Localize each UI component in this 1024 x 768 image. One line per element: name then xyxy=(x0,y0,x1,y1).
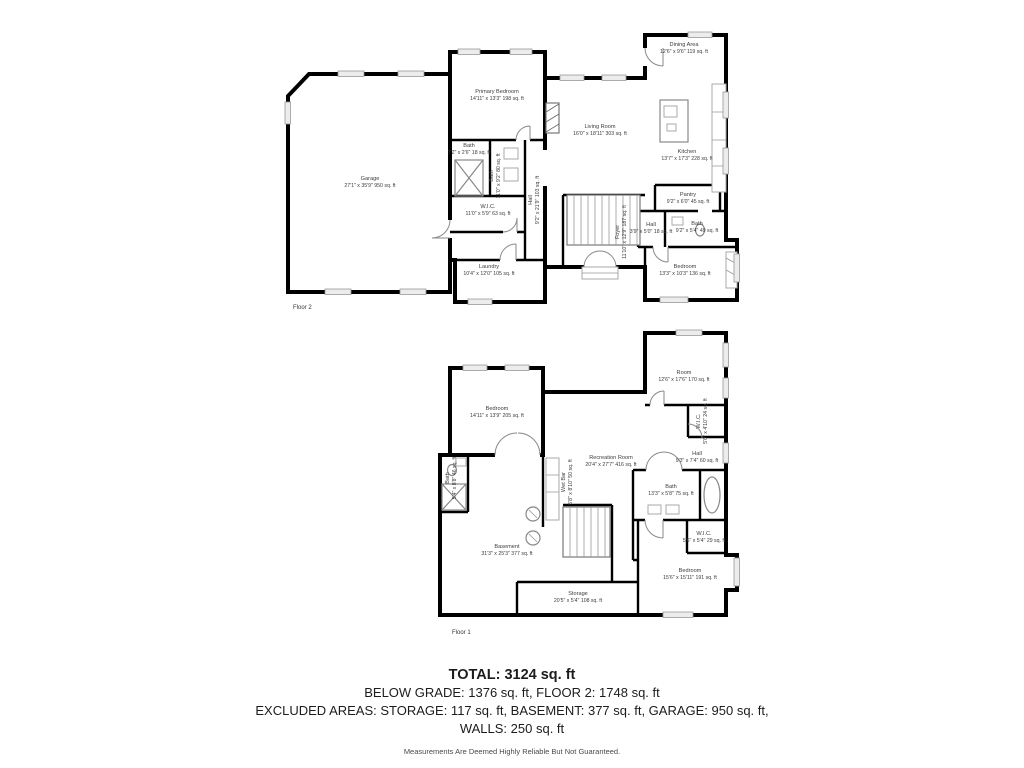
room-name: W.I.C. xyxy=(465,204,510,211)
room-name: Bath xyxy=(445,457,452,500)
room-dims: 9'2" x 5'4" 49 sq. ft xyxy=(676,228,719,235)
room-label-floor2-kitchen: Kitchen 13'7" x 17'3" 228 sq. ft xyxy=(661,149,712,163)
room-dims: 10'4" x 12'0" 105 sq. ft xyxy=(463,271,514,278)
room-label-floor1-recreation-room: Recreation Room 20'4" x 27'7" 416 sq. ft xyxy=(585,455,636,469)
floor-plan-page: Garage 27'1" x 35'9" 950 sq. ft Primary … xyxy=(0,0,1024,768)
room-dims: 7'2" x 2'6" 18 sq. ft xyxy=(448,150,491,157)
room-label-floor2-pantry: Pantry 9'2" x 6'0" 45 sq. ft xyxy=(667,192,710,206)
room-name: Bedroom xyxy=(470,406,524,413)
room-label-floor1-basement: Basement 31'3" x 25'3" 377 sq. ft xyxy=(481,544,532,558)
room-name: Bedroom xyxy=(663,568,717,575)
room-dims: 27'1" x 35'9" 950 sq. ft xyxy=(344,183,395,190)
room-label-floor2-wic: W.I.C. 11'0" x 5'9" 63 sq. ft xyxy=(465,204,510,218)
room-label-floor1-room: Room 12'6" x 17'6" 170 sq. ft xyxy=(658,370,709,384)
room-name: Kitchen xyxy=(661,149,712,156)
room-label-floor1-bedroom-right: Bedroom 15'6" x 15'11" 191 sq. ft xyxy=(663,568,717,582)
room-label-floor2-bath-right: Bath 9'2" x 5'4" 49 sq. ft xyxy=(676,221,719,235)
room-dims: 11'0" x 5'9" 63 sq. ft xyxy=(465,211,510,218)
room-name: Basement xyxy=(481,544,532,551)
floor1-caption: Floor 1 xyxy=(452,630,471,636)
floor2-stairs xyxy=(567,195,640,245)
room-name: Bath xyxy=(648,484,693,491)
room-dims: 20'4" x 27'7" 416 sq. ft xyxy=(585,462,636,469)
room-dims: 16'0" x 18'11" 303 sq. ft xyxy=(573,131,627,138)
room-dims: 14'11" x 13'3" 198 sq. ft xyxy=(470,96,524,103)
porch-steps xyxy=(582,267,618,279)
room-name: Hall xyxy=(528,176,535,224)
room-name: Room xyxy=(658,370,709,377)
room-name: Living Room xyxy=(573,124,627,131)
room-name: Garage xyxy=(344,176,395,183)
room-name: Bedroom xyxy=(659,264,710,271)
room-label-floor2-primary-bedroom: Primary Bedroom 14'11" x 13'3" 198 sq. f… xyxy=(470,89,524,103)
floor1-stairs xyxy=(563,507,610,557)
room-name: W.I.C. xyxy=(696,398,703,443)
room-dims: 5'0" x 4'10" 24 sq. ft xyxy=(703,398,710,443)
total-area-text: TOTAL: 3124 sq. ft xyxy=(0,666,1024,684)
room-label-floor2-hall-small: Hall 3'9" x 5'0" 18 sq. ft xyxy=(630,222,673,236)
room-dims: 13'3" x 10'3" 136 sq. ft xyxy=(659,271,710,278)
area-summary: TOTAL: 3124 sq. ft BELOW GRADE: 1376 sq.… xyxy=(0,666,1024,756)
room-label-floor1-bedroom-left: Bedroom 14'11" x 13'9" 205 sq. ft xyxy=(470,406,524,420)
room-label-floor1-wic-top: W.I.C. 5'0" x 4'10" 24 sq. ft xyxy=(696,398,710,443)
excluded-areas-text: EXCLUDED AREAS: STORAGE: 117 sq. ft, BAS… xyxy=(0,702,1024,720)
room-name: Hall xyxy=(676,451,719,458)
room-name: W.I.C. xyxy=(683,531,726,538)
room-name: Primary Bedroom xyxy=(470,89,524,96)
room-name: Hall xyxy=(630,222,673,229)
room-dims: 9'2" x 21'9" 103 sq. ft xyxy=(535,176,542,224)
room-dims: 15'6" x 15'11" 191 sq. ft xyxy=(663,575,717,582)
room-label-floor2-living-room: Living Room 16'0" x 18'11" 303 sq. ft xyxy=(573,124,627,138)
room-label-floor2-hall: Hall 9'2" x 21'9" 103 sq. ft xyxy=(528,176,542,224)
room-label-floor2-laundry: Laundry 10'4" x 12'0" 105 sq. ft xyxy=(463,264,514,278)
room-label-floor1-storage: Storage 20'5" x 5'4" 108 sq. ft xyxy=(554,591,602,605)
room-label-floor2-bath-main: Bath 11'0" x 9'2" 80 sq. ft xyxy=(489,153,503,198)
room-name: Pantry xyxy=(667,192,710,199)
room-label-floor1-wet-bar: Wet Bar 5'8" x 8'10" 50 sq. ft xyxy=(561,459,575,504)
room-name: Laundry xyxy=(463,264,514,271)
room-label-floor1-hall: Hall 9'3" x 7'4" 60 sq. ft xyxy=(676,451,719,465)
room-label-floor2-bedroom: Bedroom 13'3" x 10'3" 136 sq. ft xyxy=(659,264,710,278)
room-dims: 9'3" x 7'4" 60 sq. ft xyxy=(676,458,719,465)
walls-area-text: WALLS: 250 sq. ft xyxy=(0,720,1024,738)
wet-bar-counter xyxy=(546,458,559,520)
room-dims: 12'6" x 17'6" 170 sq. ft xyxy=(658,377,709,384)
disclaimer-text: Measurements Are Deemed Highly Reliable … xyxy=(0,747,1024,756)
room-label-floor1-bath-right: Bath 13'3" x 5'8" 75 sq. ft xyxy=(648,484,693,498)
grade-areas-text: BELOW GRADE: 1376 sq. ft, FLOOR 2: 1748 … xyxy=(0,684,1024,702)
room-dims: 9'2" x 6'0" 45 sq. ft xyxy=(667,199,710,206)
room-dims: 31'3" x 25'3" 377 sq. ft xyxy=(481,551,532,558)
room-dims: 11'0" x 9'2" 80 sq. ft xyxy=(496,153,503,198)
room-name: Dining Area xyxy=(660,42,708,49)
room-name: Recreation Room xyxy=(585,455,636,462)
room-name: Bath xyxy=(676,221,719,228)
room-dims: 12'6" x 9'6" 119 sq. ft xyxy=(660,49,708,56)
room-label-floor2-foyer: Foyer 11'10" x 12'9" 187 sq. ft xyxy=(615,205,629,259)
room-label-floor2-garage: Garage 27'1" x 35'9" 950 sq. ft xyxy=(344,176,395,190)
room-dims: 5'8" x 8'10" 50 sq. ft xyxy=(568,459,575,504)
room-label-floor1-wic-right: W.I.C. 5'6" x 5'4" 29 sq. ft xyxy=(683,531,726,545)
room-name: Foyer xyxy=(615,205,622,259)
room-dims: 14'11" x 13'9" 205 sq. ft xyxy=(470,413,524,420)
fireplace-hatch xyxy=(546,103,559,133)
room-label-floor2-dining-area: Dining Area 12'6" x 9'6" 119 sq. ft xyxy=(660,42,708,56)
room-dims: 3'9" x 5'0" 18 sq. ft xyxy=(630,229,673,236)
room-dims: 5'6" x 5'4" 29 sq. ft xyxy=(683,538,726,545)
room-label-floor2-bath-small: Bath 7'2" x 2'6" 18 sq. ft xyxy=(448,143,491,157)
room-dims: 13'7" x 17'3" 228 sq. ft xyxy=(661,156,712,163)
room-name: Storage xyxy=(554,591,602,598)
room-label-floor1-bath-left: Bath 5'4" x 8'8" 46 sq. ft xyxy=(445,457,459,500)
floor2-caption: Floor 2 xyxy=(293,305,312,311)
room-name: Bath xyxy=(489,153,496,198)
room-dims: 5'4" x 8'8" 46 sq. ft xyxy=(452,457,459,500)
floor-plan-drawing xyxy=(0,0,1024,768)
room-name: Bath xyxy=(448,143,491,150)
room-dims: 20'5" x 5'4" 108 sq. ft xyxy=(554,598,602,605)
room-dims: 13'3" x 5'8" 75 sq. ft xyxy=(648,491,693,498)
room-name: Wet Bar xyxy=(561,459,568,504)
room-dims: 11'10" x 12'9" 187 sq. ft xyxy=(622,205,629,259)
